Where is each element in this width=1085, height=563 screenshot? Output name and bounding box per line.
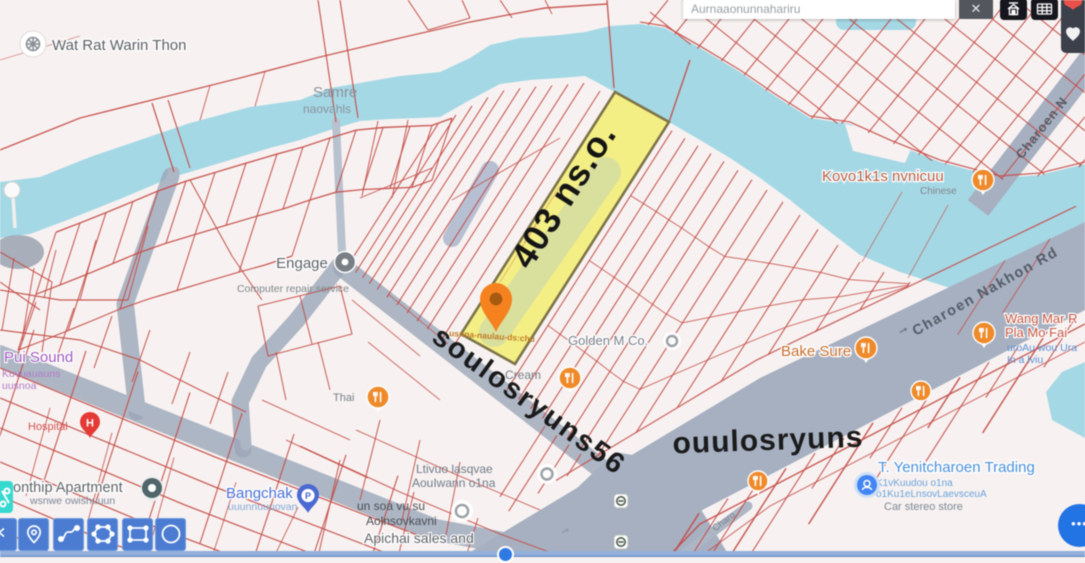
svg-text:Chinese: Chinese: [920, 186, 957, 197]
svg-text:Wat Rat Warin Thon: Wat Rat Warin Thon: [52, 37, 187, 54]
svg-text:H: H: [86, 418, 94, 430]
svg-text:onthip Apartment: onthip Apartment: [13, 480, 123, 496]
svg-text:Samre: Samre: [313, 84, 357, 101]
svg-text:Golden M Co.: Golden M Co.: [568, 333, 648, 348]
svg-text:Apichai sales and: Apichai sales and: [364, 530, 474, 546]
svg-text:naovahls: naovahls: [303, 102, 351, 116]
svg-text:Engage: Engage: [276, 255, 328, 272]
svg-text:Computer repair service: Computer repair service: [237, 283, 349, 295]
svg-text:Hospital: Hospital: [28, 421, 68, 433]
svg-text:Car stereo store: Car stereo store: [884, 501, 963, 513]
svg-text:ouulosryuns: ouulosryuns: [672, 421, 864, 461]
svg-text:Thai: Thai: [333, 392, 354, 404]
svg-text:o1Ku1eLnsovLaevsceuA: o1Ku1eLnsovLaevsceuA: [876, 489, 987, 500]
svg-text:Bangchak: Bangchak: [226, 485, 293, 502]
svg-text:In a lviu: In a lviu: [1007, 354, 1043, 366]
svg-text:T. Yenitcharoen Trading: T. Yenitcharoen Trading: [878, 459, 1035, 476]
svg-text:uuunnuuuovan: uuunnuuuovan: [228, 501, 298, 513]
svg-text:K1vKuudou o1na: K1vKuudou o1na: [876, 478, 953, 489]
svg-text:wsnwe owishuuun: wsnwe owishuuun: [29, 495, 115, 507]
svg-text:Pui Sound: Pui Sound: [4, 349, 73, 366]
svg-text:.. Cream: .. Cream: [495, 368, 541, 382]
svg-text:Kovo1k1s nvnicuu: Kovo1k1s nvnicuu: [822, 168, 944, 185]
svg-text:uroAu wou Ura: uroAu wou Ura: [1007, 342, 1077, 354]
svg-text:uusnoa: uusnoa: [2, 380, 37, 392]
svg-text:AouIwann o1na: AouIwann o1na: [412, 476, 496, 490]
svg-text:Bake Sure: Bake Sure: [781, 343, 851, 360]
svg-text:Aolnsovkavni: Aolnsovkavni: [366, 514, 437, 528]
svg-text:P: P: [305, 491, 311, 501]
svg-text:Ltivuo lasqvae: Ltivuo lasqvae: [416, 462, 493, 476]
svg-text:Pla Mo Fai: Pla Mo Fai: [1005, 325, 1067, 340]
svg-text:Wang Mar R: Wang Mar R: [1005, 311, 1077, 326]
svg-text:Kovuauauns: Kovuauauns: [2, 368, 60, 380]
svg-text:un soa vu su: un soa vu su: [357, 499, 425, 513]
